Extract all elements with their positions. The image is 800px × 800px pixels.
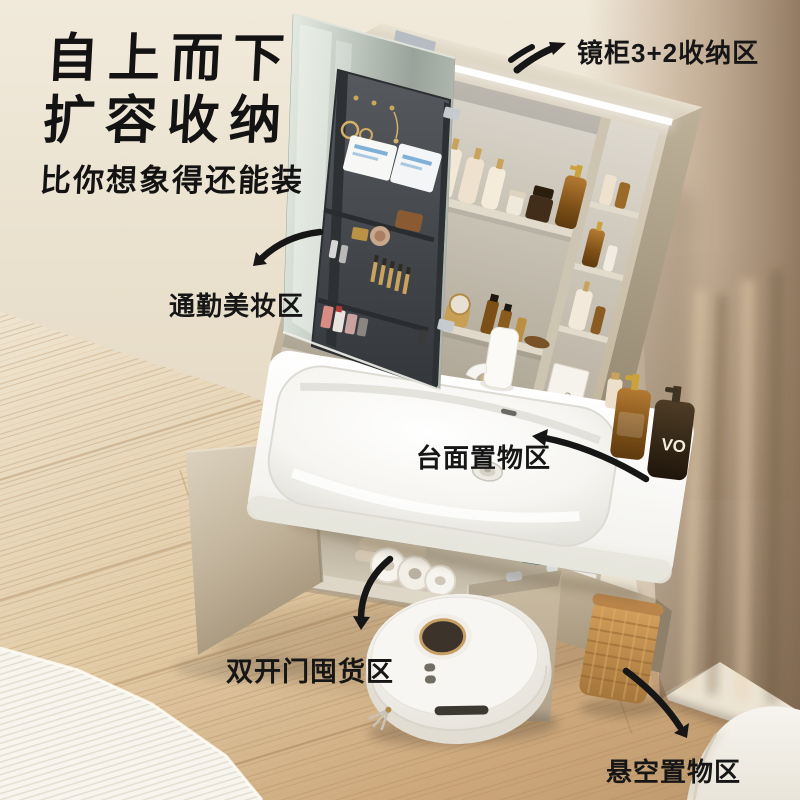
- dark-bottle-label: VO: [660, 435, 687, 457]
- label-stock-area: 双开门囤货区: [226, 650, 394, 689]
- marketing-image: oce: [0, 0, 800, 800]
- label-floating-area: 悬空置物区: [606, 752, 741, 789]
- headline-line2: 扩容收纳: [42, 90, 309, 152]
- headline: 自上而下 扩容收纳 比你想象得还能装: [39, 28, 312, 199]
- headline-line1: 自上而下: [45, 28, 312, 90]
- label-countertop: 台面置物区: [416, 438, 551, 475]
- label-makeup-area: 通勤美妆区: [169, 286, 304, 323]
- label-mirror-cabinet: 镜柜3+2收纳区: [577, 33, 759, 70]
- headline-subline: 比你想象得还能装: [39, 163, 305, 199]
